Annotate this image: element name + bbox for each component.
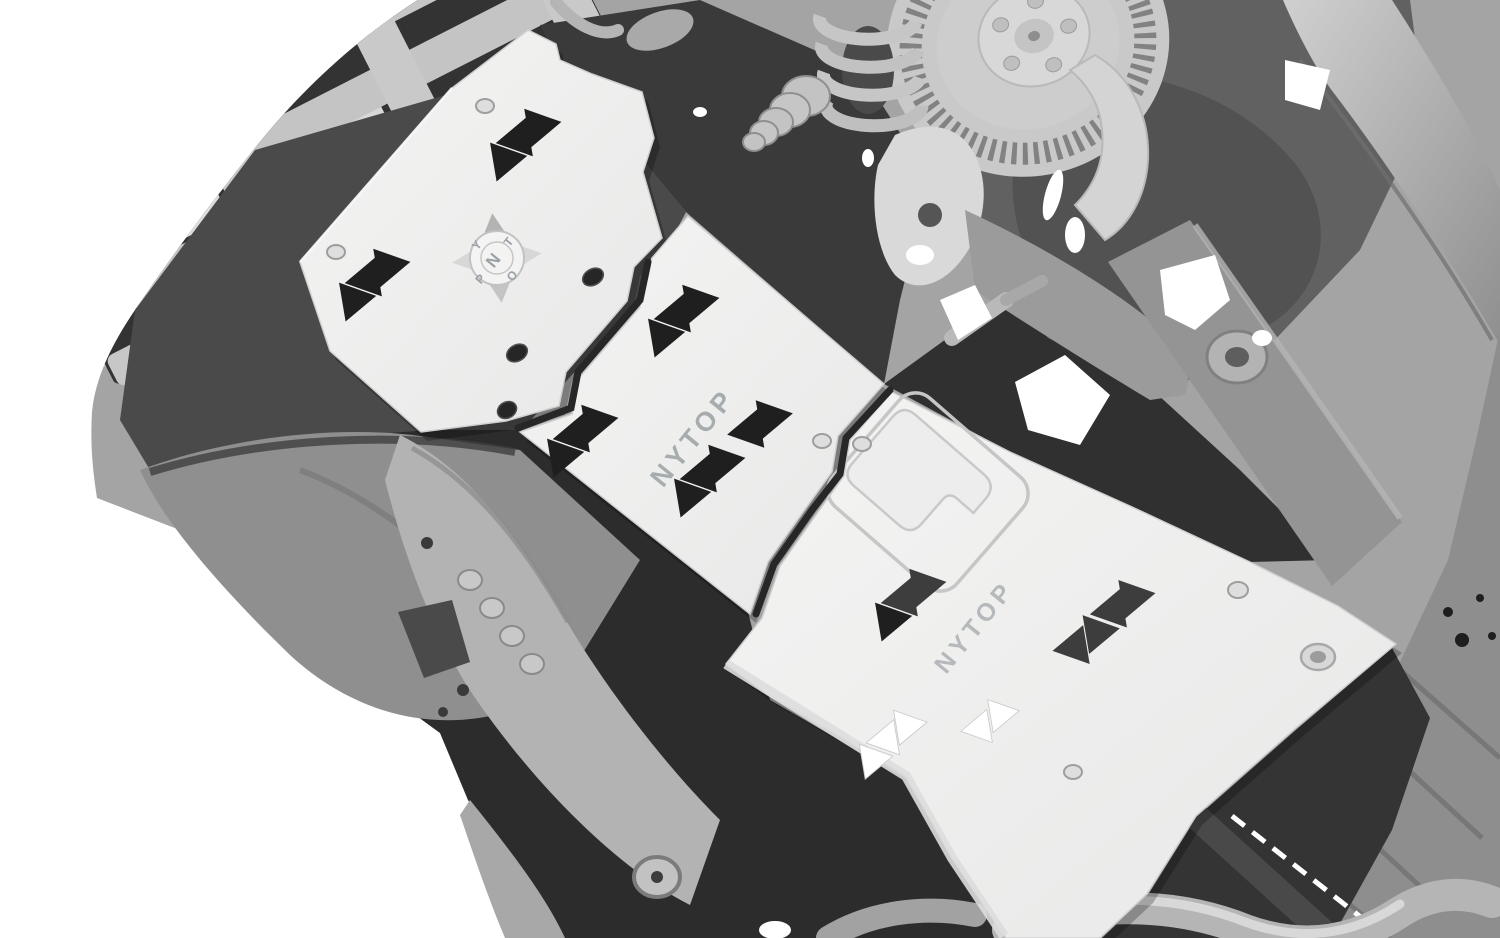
scan-speckle: [1476, 594, 1484, 602]
scan-gap: [906, 245, 934, 265]
scan-speckle: [1443, 607, 1453, 617]
scan-speckle: [1488, 632, 1496, 640]
cam-bolt: [651, 871, 663, 883]
corner-bolt-head: [1310, 651, 1326, 663]
arm-hole: [438, 707, 448, 717]
plate-bolt: [813, 434, 831, 448]
scan-gap: [1065, 217, 1085, 253]
arm-dimple: [480, 598, 504, 618]
body-mount-bore: [1225, 347, 1249, 367]
scan-gap: [862, 149, 874, 167]
scan-gap: [1252, 330, 1272, 346]
arm-hole: [421, 537, 433, 549]
arm-dimple: [458, 570, 482, 590]
underbody-render: Y T P O N: [0, 0, 1500, 938]
plate-bolt: [476, 99, 494, 113]
arm-hole: [457, 684, 469, 696]
render-canvas: Y T P O N: [0, 0, 1500, 938]
plate-bolt: [853, 437, 871, 451]
arm-dimple: [520, 654, 544, 674]
knuckle-hole: [918, 203, 942, 227]
arm-dimple: [500, 626, 524, 646]
scan-speckle: [1455, 633, 1469, 647]
plate-bolt: [327, 245, 345, 259]
scan-gap: [693, 107, 707, 117]
plate-bolt: [1064, 765, 1082, 779]
plate-corner-bolt: [1301, 644, 1335, 670]
plate-bolt: [1228, 582, 1248, 598]
boot-rib: [743, 133, 765, 151]
